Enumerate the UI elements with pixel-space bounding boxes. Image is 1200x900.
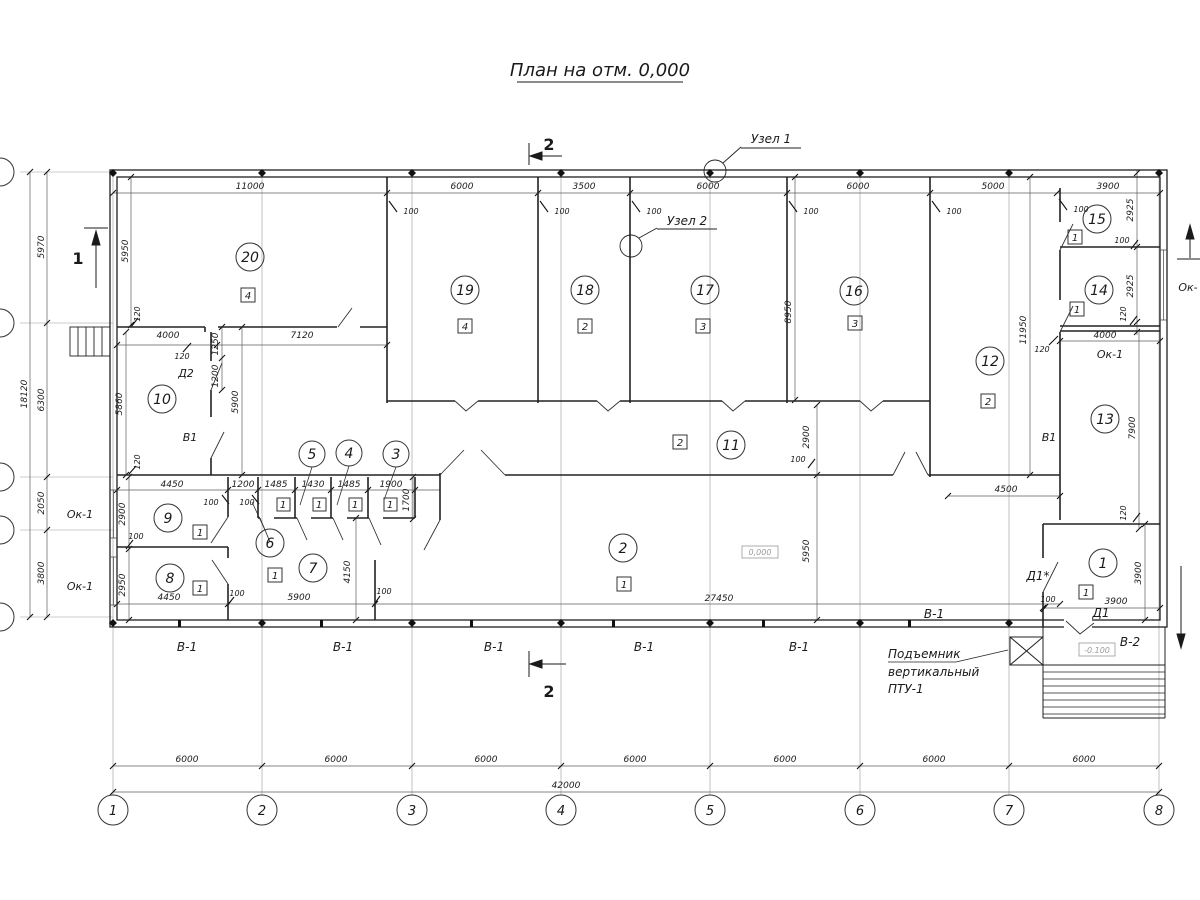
dim-100: 100: [239, 498, 254, 507]
elevation-ground: 0,000: [749, 548, 772, 557]
type-stall-1: 1: [280, 500, 286, 511]
dim-top-4: 6000: [697, 182, 720, 192]
axis-4: 4: [557, 804, 565, 819]
type-room-8: 1: [197, 584, 203, 595]
dim-corr-h: 2900: [802, 425, 812, 448]
lift-label-1: Подъемник: [888, 647, 961, 661]
door-label-d2: Д2: [177, 367, 194, 380]
floor-plan-svg: План на отм. 0,000 2 2 1 Узел 1 Узел 2 1…: [0, 0, 1200, 900]
texts: План на отм. 0,000 2 2 1 Узел 1 Узел 2 1…: [20, 60, 1198, 819]
platform-outline: [1043, 627, 1165, 718]
dim-120: 120: [133, 454, 142, 469]
lift-cross-icon: [1010, 637, 1043, 665]
room-9: 9: [164, 511, 173, 527]
section-mark-left: 1: [72, 249, 83, 268]
dim-100: 100: [203, 498, 218, 507]
dim-100: 100: [1114, 236, 1129, 245]
vent-label-v1-right: В1: [1042, 431, 1057, 444]
dim-100: 100: [376, 587, 391, 596]
dim-top-3: 3500: [573, 182, 596, 192]
type-room-11: 2: [677, 438, 683, 449]
dim-bay-2: 6000: [325, 755, 348, 765]
uzel1-label: Узел 1: [751, 132, 791, 146]
dim-120: 120: [1034, 345, 1049, 354]
room-6: 6: [266, 536, 275, 552]
type-room-1: 1: [1083, 588, 1089, 599]
dim-wall-100: 100: [946, 207, 961, 216]
dim-room8-h: 2950: [118, 573, 128, 596]
axis-8: 8: [1155, 804, 1163, 819]
dim-wall12-h: 11950: [1019, 315, 1029, 344]
axis-node-markers: [109, 169, 1163, 627]
vent-label-v1-left: В1: [183, 431, 198, 444]
dim-bay-5: 6000: [774, 755, 797, 765]
type-room-7: 1: [272, 571, 278, 582]
dim-wall-100: 100: [1073, 205, 1088, 214]
type-room-9: 1: [197, 528, 203, 539]
dim-1200: 1200: [232, 480, 255, 490]
dim-room9-h: 2900: [118, 502, 128, 525]
type-stall-4: 1: [387, 500, 393, 511]
dim-room8-w: 4450: [158, 593, 181, 603]
type-stall-3: 1: [352, 500, 358, 511]
axis-1: 1: [109, 804, 117, 819]
window-label-ok1-left: Ок-1: [67, 580, 93, 593]
room-8: 8: [166, 571, 175, 587]
room-3: 3: [392, 447, 401, 463]
stairs-left: [70, 327, 110, 356]
section-marks: [84, 143, 1200, 677]
elevation-entrance: -0.100: [1084, 646, 1110, 655]
lift-block: [1010, 627, 1165, 718]
dim-left-overall: 18120: [20, 379, 30, 408]
section-mark-bottom: 2: [543, 682, 554, 701]
uzel-callouts: [620, 147, 801, 257]
dim-d2-upper: 1250: [211, 332, 221, 355]
room-20: 20: [241, 250, 259, 266]
type-room-17: 3: [700, 322, 706, 333]
dim-room1-h: 3900: [1134, 561, 1144, 584]
axis-5: 5: [706, 804, 714, 819]
window-label-ok1-left: Ок-1: [67, 508, 93, 521]
room-18: 18: [576, 283, 594, 299]
interior-walls: [117, 177, 1160, 627]
lift-label-3: ПТУ-1: [888, 682, 924, 696]
wall-type-label-b1: В-1: [789, 640, 809, 654]
dim-left-6300: 6300: [37, 388, 47, 411]
door-label-d1-star: Д1*: [1025, 569, 1049, 583]
dim-rooms67-w: 5900: [288, 593, 311, 603]
dim-room20-right: 7120: [291, 331, 314, 341]
type-room-18: 2: [582, 322, 588, 333]
type-stall-2: 1: [316, 500, 322, 511]
dim-room10-h: 5860: [115, 392, 125, 415]
drawing-title: План на отм. 0,000: [510, 60, 690, 81]
dim-100: 100: [1040, 595, 1055, 604]
room-15: 15: [1088, 212, 1106, 228]
drawing-sheet: План на отм. 0,000 2 2 1 Узел 1 Узел 2 1…: [0, 0, 1200, 900]
dim-room2-h: 5950: [802, 539, 812, 562]
room-1: 1: [1099, 556, 1108, 572]
dim-top-1: 11000: [236, 182, 265, 192]
type-room-2: 1: [621, 580, 627, 591]
dim-bay-7: 6000: [1073, 755, 1096, 765]
room-12: 12: [981, 354, 999, 370]
axis-6: 6: [856, 804, 864, 819]
dimension-ticks: [27, 169, 1163, 795]
dim-hall-e: 4500: [995, 485, 1018, 495]
dim-room2-w: 27450: [705, 594, 734, 604]
dim-wall-100: 100: [803, 207, 818, 216]
room-10: 10: [153, 392, 171, 408]
dim-100: 100: [229, 589, 244, 598]
uzel1-circle: [704, 160, 726, 182]
room-4: 4: [345, 446, 354, 462]
window-label-ok-cut: Ок-: [1178, 281, 1197, 294]
axis-7: 7: [1005, 804, 1014, 819]
room-7: 7: [309, 561, 318, 577]
dim-stall-h: 1700: [402, 488, 412, 511]
dim-100: 100: [790, 455, 805, 464]
dim-bay-1: 6000: [176, 755, 199, 765]
dim-left-2050: 2050: [37, 491, 47, 514]
room-14: 14: [1090, 283, 1108, 299]
wall-type-label-b1: В-1: [333, 640, 353, 654]
type-room-16: 3: [852, 319, 858, 330]
dim-top-6: 5000: [982, 182, 1005, 192]
dim-ok-right-w: 4000: [1094, 331, 1117, 341]
room-17: 17: [696, 283, 714, 299]
dim-120: 120: [133, 306, 142, 321]
door-label-d1: Д1: [1091, 606, 1109, 620]
axis-grid-lines: [20, 170, 1159, 795]
dim-r15-h: 2925: [1126, 198, 1136, 221]
dim-room20-left: 4000: [157, 331, 180, 341]
dim-st1: 1485: [265, 480, 288, 490]
dim-wall-100: 100: [554, 207, 569, 216]
wall-type-label-b1: В-1: [924, 607, 944, 621]
dim-st4: 1900: [380, 480, 403, 490]
dim-r13-h: 7900: [1128, 416, 1138, 439]
dim-r14-h: 2925: [1126, 274, 1136, 297]
type-room-20: 4: [245, 291, 251, 302]
dim-row9-w: 4450: [161, 480, 184, 490]
dimension-lines: [30, 170, 1160, 792]
dim-hall10-h: 5900: [231, 390, 241, 413]
wall-type-label-b2: В-2: [1120, 635, 1140, 649]
dim-room16-h: 8950: [784, 300, 794, 323]
dim-bay-3: 6000: [475, 755, 498, 765]
room-5: 5: [308, 447, 317, 463]
dim-top-2: 6000: [451, 182, 474, 192]
wall-type-label-b1: В-1: [634, 640, 654, 654]
dim-120: 120: [1119, 505, 1128, 520]
room-type-squares: [193, 230, 1093, 599]
dim-bay-6: 6000: [923, 755, 946, 765]
room-bubbles: [148, 205, 1119, 592]
dim-left-3800: 3800: [37, 561, 47, 584]
room-13: 13: [1096, 412, 1114, 428]
type-room-12: 2: [985, 397, 991, 408]
dim-120: 120: [1119, 306, 1128, 321]
dim-top-7: 3900: [1097, 182, 1120, 192]
room-2: 2: [619, 541, 628, 557]
dim-d2-lower: 1200: [211, 364, 221, 387]
section-mark-top: 2: [543, 135, 554, 154]
dim-room20-h: 5950: [121, 239, 131, 262]
type-room-14: 1: [1074, 305, 1080, 316]
window-label-ok1: Ок-1: [1097, 348, 1123, 361]
dim-st2: 1430: [302, 480, 325, 490]
ramp-treads: [1043, 672, 1165, 714]
dim-bay-4: 6000: [624, 755, 647, 765]
uzel2-circle: [620, 235, 642, 257]
dim-overall-42000: 42000: [552, 781, 581, 791]
dim-120: 120: [174, 352, 189, 361]
type-room-15: 1: [1072, 233, 1078, 244]
uzel2-label: Узел 2: [667, 214, 707, 228]
dim-top-5: 6000: [847, 182, 870, 192]
dim-st3: 1485: [338, 480, 361, 490]
lift-label-2: вертикальный: [888, 665, 980, 679]
axis-2: 2: [258, 804, 266, 819]
wall-type-label-b1: В-1: [177, 640, 197, 654]
room-19: 19: [456, 283, 474, 299]
dim-room7-h: 4150: [343, 560, 353, 583]
type-room-19: 4: [462, 322, 468, 333]
room-11: 11: [722, 438, 740, 454]
axis-3: 3: [408, 804, 416, 819]
wall-type-label-b1: В-1: [484, 640, 504, 654]
dim-100: 100: [128, 532, 143, 541]
dim-wall-100: 100: [403, 207, 418, 216]
dim-left-5970: 5970: [37, 235, 47, 258]
dim-wall-100: 100: [646, 207, 661, 216]
room-16: 16: [845, 284, 863, 300]
